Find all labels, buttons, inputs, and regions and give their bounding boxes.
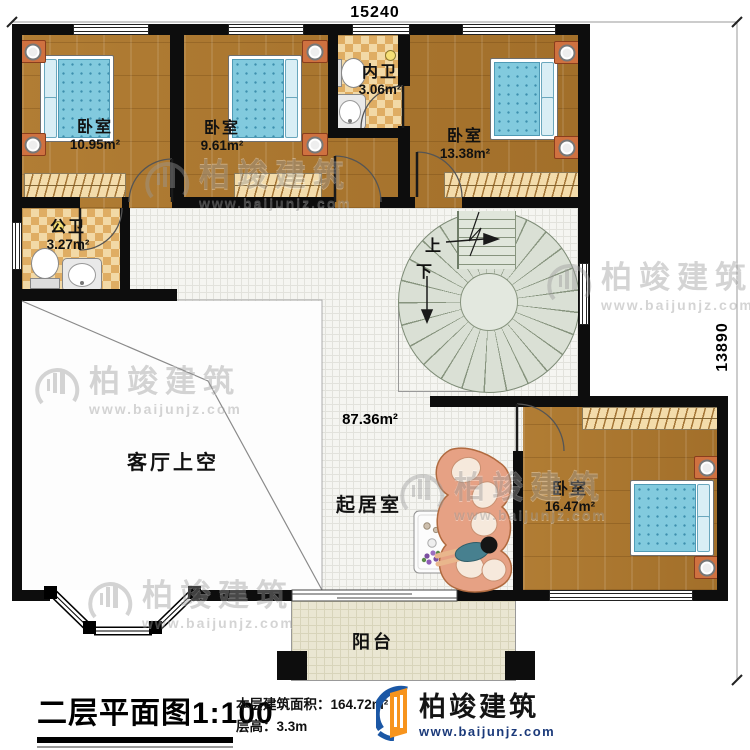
wall [12, 24, 22, 601]
room-label-living-room: 起居室 [319, 490, 419, 517]
toilet [30, 248, 58, 289]
wall [578, 24, 590, 396]
wardrobe-bedroom1 [24, 173, 126, 198]
brand-website: www.baijunjz.com [419, 724, 555, 739]
balcony-pillar [505, 651, 535, 680]
brand-logo-icon [376, 683, 412, 741]
nightstand-lamp [20, 40, 46, 63]
room-label-ensuite-bath: 内卫3.06m² [335, 64, 425, 98]
bed-pillow [285, 59, 298, 100]
wall [462, 197, 590, 208]
brand-name: 柏竣建筑 [419, 685, 555, 724]
staircase-flight [457, 211, 516, 269]
wall [430, 396, 728, 407]
bed-pillow [697, 484, 710, 520]
room-label-bedroom3: 卧室13.38m² [415, 128, 515, 162]
bed-bedroom4 [630, 480, 714, 556]
window [12, 222, 22, 270]
wall [192, 590, 292, 601]
wardrobe-bedroom3 [444, 172, 579, 198]
wall [12, 289, 177, 301]
nightstand-lamp [20, 133, 46, 156]
ceiling-light-icon [385, 50, 396, 61]
bed-pillow [697, 516, 710, 552]
nightstand-lamp [554, 41, 580, 64]
bed-mattress [634, 484, 696, 552]
wall [398, 126, 410, 197]
bay-window [44, 586, 201, 634]
window [352, 24, 410, 35]
sink [334, 94, 366, 130]
brand-logo: 柏竣建筑 www.baijunjz.com [376, 683, 555, 741]
wall [328, 128, 406, 138]
wall [172, 197, 335, 208]
nightstand-lamp [554, 136, 580, 159]
wall [170, 24, 184, 197]
stair-down-label: 下 [416, 258, 432, 282]
wardrobe-bedroom4 [582, 407, 719, 430]
staircase-landing [460, 273, 518, 331]
window [549, 590, 693, 601]
dimension-depth: 13890 [714, 317, 732, 377]
stair-up-label: 上 [425, 232, 441, 256]
nightstand-lamp [302, 133, 328, 156]
title-underline-thin [37, 746, 233, 748]
room-label-living-void: 客厅上空 [93, 446, 253, 475]
room-label-balcony: 阳台 [333, 628, 413, 654]
wall [513, 451, 523, 601]
floor-stats: 本层建筑面积：164.72m² 层高：3.3m [236, 694, 388, 739]
room-label-bedroom4: 卧室16.47m² [520, 481, 620, 515]
wardrobe-bedroom2 [234, 173, 322, 198]
bed-pillow [541, 97, 554, 136]
title-underline [37, 737, 233, 743]
wall [457, 590, 513, 601]
floor-height-row: 层高：3.3m [236, 716, 388, 738]
sliding-door [292, 590, 457, 601]
nightstand-lamp [302, 40, 328, 63]
window [579, 263, 589, 325]
window [228, 24, 304, 35]
bed-pillow [44, 59, 57, 100]
wall [22, 197, 80, 208]
bed-pillow [285, 97, 298, 138]
floor-area-row: 本层建筑面积：164.72m² [236, 694, 388, 716]
bed-pillow [541, 62, 554, 101]
window [462, 24, 556, 35]
bed-mattress [494, 62, 540, 136]
wall [120, 208, 130, 301]
wall [717, 396, 728, 601]
wall [12, 590, 50, 601]
wall [380, 197, 415, 208]
wall [122, 197, 129, 208]
room-label-bedroom1: 卧室10.95m² [45, 119, 145, 153]
dimension-width: 15240 [345, 4, 405, 22]
window [73, 24, 149, 35]
living-room-area-label: 87.36m² [320, 411, 420, 428]
floor-plan-canvas: 上 下 [0, 0, 750, 750]
sink [62, 258, 102, 292]
room-label-bedroom2: 卧室9.61m² [172, 120, 272, 154]
room-label-public-bath: 公卫3.27m² [28, 219, 108, 253]
balcony-pillar [277, 651, 307, 680]
